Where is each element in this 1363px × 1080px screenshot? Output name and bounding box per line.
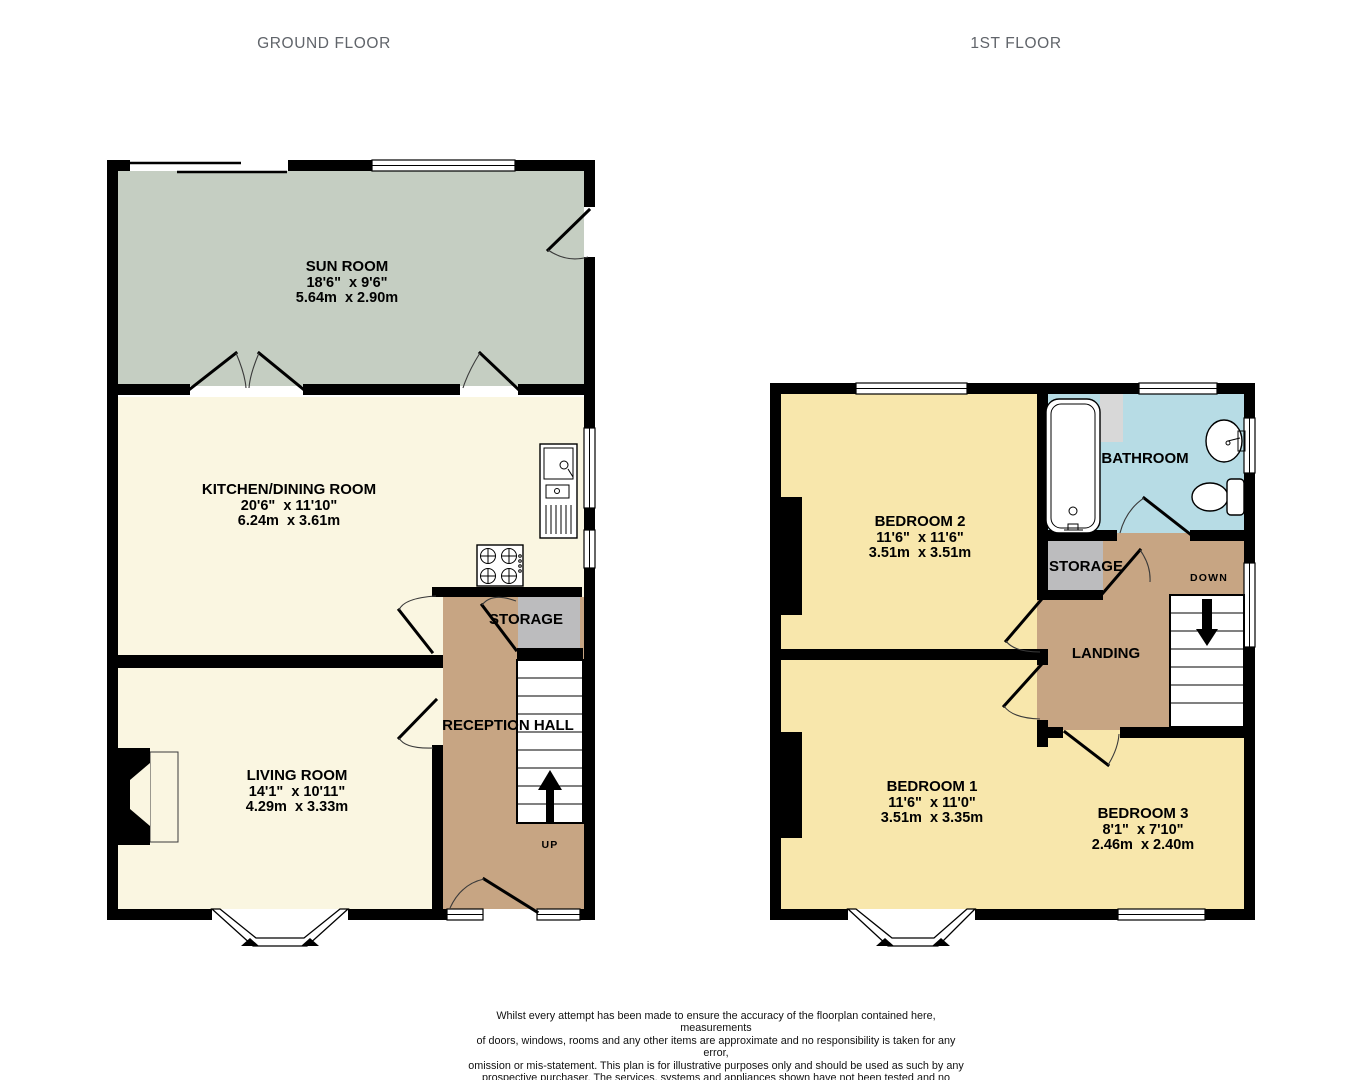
bathroom-label: BATHROOM <box>1101 450 1188 467</box>
sun-room-label: SUN ROOM <box>306 258 389 275</box>
stairs-up-label: UP <box>542 839 559 851</box>
kitchen-sink <box>540 444 577 538</box>
floorplan-page: GROUND FLOOR 1ST FLOOR <box>0 0 1363 1080</box>
bedroom3-label: BEDROOM 3 <box>1098 805 1189 822</box>
ground-floor-title: GROUND FLOOR <box>257 35 391 52</box>
bedroom1-dims-imperial: 11'6" x 11'0" <box>888 795 976 811</box>
sliding-door <box>130 163 287 172</box>
bedroom1-dims-metric: 3.51m x 3.35m <box>881 810 983 826</box>
reception-hall-label: RECEPTION HALL <box>442 717 574 734</box>
sun-room-dims-metric: 5.64m x 2.90m <box>296 290 398 306</box>
disclaimer-text: Whilst every attempt has been made to en… <box>466 1010 966 1080</box>
sun-room-dims-imperial: 18'6" x 9'6" <box>306 275 387 291</box>
bedroom1-label: BEDROOM 1 <box>887 778 978 795</box>
bathtub <box>1046 399 1100 533</box>
kitchen-dims-metric: 6.24m x 3.61m <box>238 513 340 529</box>
chimney-breast <box>112 748 178 845</box>
bedroom2-label: BEDROOM 2 <box>875 513 966 530</box>
living-room-label: LIVING ROOM <box>247 767 348 784</box>
bay-window <box>212 909 348 946</box>
bedroom2-dims-metric: 3.51m x 3.51m <box>869 545 971 561</box>
disclaimer-line: omission or mis-statement. This plan is … <box>466 1060 966 1072</box>
kitchen-label: KITCHEN/DINING ROOM <box>202 481 376 498</box>
bedroom3-dims-imperial: 8'1" x 7'10" <box>1102 822 1183 838</box>
staircase-down <box>1170 595 1244 727</box>
bedroom3-dims-metric: 2.46m x 2.40m <box>1092 837 1194 853</box>
bedroom2-dims-imperial: 11'6" x 11'6" <box>876 530 964 546</box>
hob <box>477 545 523 586</box>
floorplan-drawing: GROUND FLOOR 1ST FLOOR <box>0 0 1363 1080</box>
disclaimer-line: prospective purchaser. The services, sys… <box>466 1072 966 1080</box>
landing-label: LANDING <box>1072 645 1140 662</box>
staircase-up <box>517 660 583 823</box>
bedroom1-chimney-breast <box>781 732 802 838</box>
ground-storage-label: STORAGE <box>489 611 563 628</box>
living-room-dims-imperial: 14'1" x 10'11" <box>249 784 345 800</box>
bedroom2-chimney-breast <box>781 497 802 615</box>
first-storage-label: STORAGE <box>1049 558 1123 575</box>
bedroom1-bay-window <box>848 909 975 946</box>
first-floor-plan: BEDROOM 2 11'6" x 11'6" 3.51m x 3.51m BE… <box>770 383 1255 946</box>
disclaimer-line: of doors, windows, rooms and any other i… <box>466 1035 966 1060</box>
ground-floor-plan: SUN ROOM 18'6" x 9'6" 5.64m x 2.90m KITC… <box>107 160 595 946</box>
first-floor-title: 1ST FLOOR <box>970 35 1061 52</box>
kitchen-dims-imperial: 20'6" x 11'10" <box>241 498 337 514</box>
living-room-dims-metric: 4.29m x 3.33m <box>246 799 348 815</box>
bathroom-alcove <box>1100 394 1123 442</box>
disclaimer-line: Whilst every attempt has been made to en… <box>466 1010 966 1035</box>
stairs-down-label: DOWN <box>1190 572 1228 584</box>
